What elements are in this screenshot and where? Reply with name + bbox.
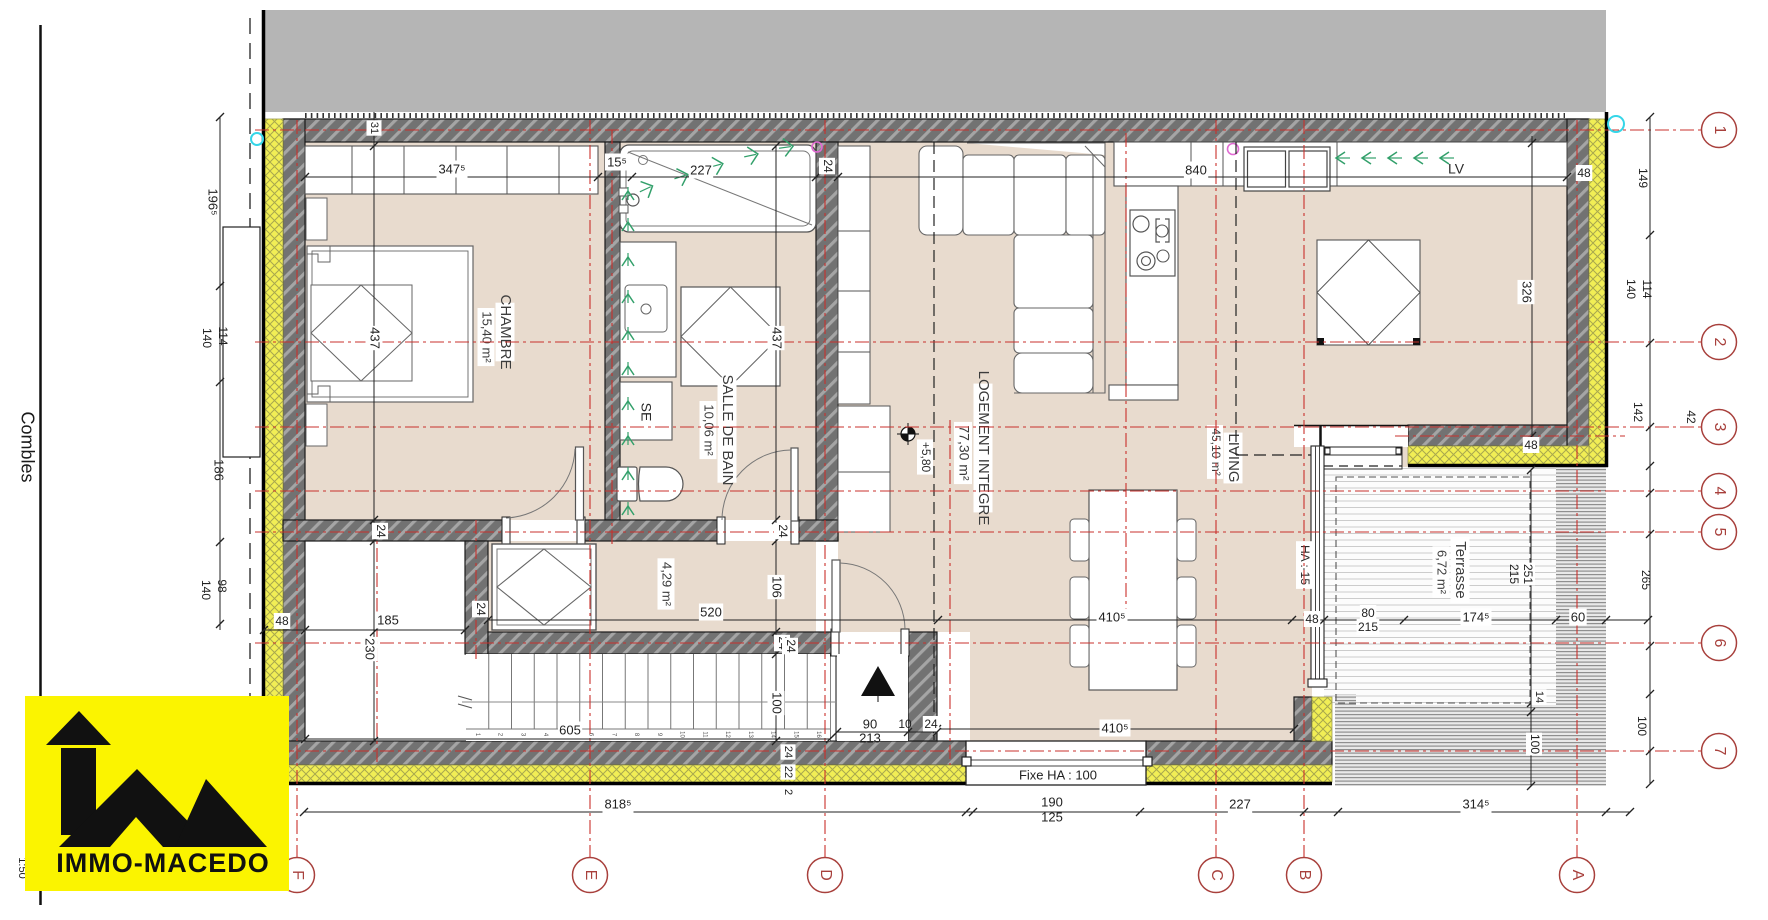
svg-text:2: 2: [782, 789, 794, 795]
svg-text:10: 10: [898, 717, 912, 731]
svg-text:410⁵: 410⁵: [1101, 720, 1128, 735]
svg-text:E: E: [582, 870, 599, 881]
svg-text:10: 10: [679, 731, 685, 738]
svg-text:186: 186: [212, 459, 227, 481]
svg-text:+5,80: +5,80: [919, 442, 933, 473]
svg-text:24: 24: [784, 639, 798, 653]
svg-text:106: 106: [770, 576, 785, 598]
svg-text:14: 14: [770, 731, 776, 738]
svg-text:24: 24: [821, 159, 835, 173]
svg-text:100: 100: [1635, 716, 1649, 736]
svg-text:410⁵: 410⁵: [1098, 609, 1125, 624]
svg-text:SALLE DE BAIN: SALLE DE BAIN: [719, 375, 736, 486]
svg-text:818⁵: 818⁵: [604, 796, 631, 811]
svg-text:230: 230: [363, 638, 378, 660]
svg-text:114: 114: [1640, 279, 1654, 298]
svg-text:A: A: [1569, 870, 1586, 881]
svg-text:605: 605: [559, 722, 581, 737]
svg-text:174⁵: 174⁵: [1462, 609, 1489, 624]
svg-text:IMMO-MACEDO: IMMO-MACEDO: [56, 848, 269, 878]
svg-text:SE: SE: [638, 403, 654, 422]
svg-text:185: 185: [377, 612, 399, 627]
svg-text:24: 24: [924, 717, 938, 731]
svg-text:24: 24: [776, 524, 790, 538]
svg-text:3: 3: [1711, 423, 1728, 432]
svg-text:LOGEMENT INTEGRE: LOGEMENT INTEGRE: [975, 371, 992, 526]
svg-text:15,40 m²: 15,40 m²: [480, 311, 495, 363]
svg-text:437: 437: [368, 327, 383, 349]
svg-text:80: 80: [1361, 606, 1375, 620]
svg-text:60: 60: [1571, 609, 1585, 624]
svg-text:15⁵: 15⁵: [607, 154, 627, 169]
svg-text:HA :-15: HA :-15: [1298, 545, 1312, 585]
svg-text:B: B: [1296, 870, 1313, 881]
svg-text:6,72 m²: 6,72 m²: [1435, 550, 1450, 595]
svg-text:520: 520: [700, 604, 722, 619]
svg-text:10,06 m²: 10,06 m²: [702, 404, 717, 456]
svg-text:15: 15: [792, 731, 798, 738]
svg-text:Fixe HA : 100: Fixe HA : 100: [1019, 767, 1097, 782]
svg-text:Terrasse: Terrasse: [1452, 541, 1469, 599]
svg-text:90: 90: [863, 716, 877, 731]
svg-text:140: 140: [199, 580, 213, 600]
svg-text:42: 42: [1684, 410, 1698, 424]
svg-text:48: 48: [275, 614, 289, 628]
svg-text:LV: LV: [1448, 161, 1465, 177]
svg-text:12: 12: [724, 731, 730, 738]
svg-text:24: 24: [474, 602, 488, 616]
svg-text:16: 16: [815, 731, 821, 738]
svg-text:4,29 m²: 4,29 m²: [660, 562, 675, 607]
svg-text:7: 7: [1711, 747, 1728, 756]
svg-text:314⁵: 314⁵: [1462, 796, 1489, 811]
svg-text:140: 140: [1624, 279, 1638, 299]
svg-text:77,30 m²: 77,30 m²: [956, 425, 972, 481]
svg-text:227: 227: [1229, 796, 1251, 811]
svg-text:196⁵: 196⁵: [206, 188, 221, 215]
svg-text:F: F: [289, 870, 306, 880]
svg-text:5: 5: [1711, 528, 1728, 537]
svg-text:22: 22: [782, 766, 794, 778]
svg-text:114: 114: [216, 326, 230, 345]
svg-text:1: 1: [1711, 126, 1728, 135]
svg-text:215: 215: [1358, 620, 1378, 634]
svg-text:48: 48: [1305, 612, 1319, 626]
svg-text:100: 100: [770, 692, 785, 714]
svg-text:48: 48: [1524, 438, 1538, 452]
svg-text:Combles: Combles: [17, 411, 37, 482]
svg-text:24: 24: [374, 524, 388, 538]
svg-text:6: 6: [1711, 639, 1728, 648]
svg-text:C: C: [1208, 869, 1225, 881]
svg-text:13: 13: [747, 731, 753, 738]
svg-text:98: 98: [215, 579, 229, 593]
svg-text:D: D: [817, 869, 834, 881]
svg-text:227: 227: [690, 162, 712, 177]
svg-text:215: 215: [1507, 564, 1521, 584]
svg-text:4: 4: [1711, 487, 1728, 496]
svg-text:2: 2: [1711, 338, 1728, 347]
svg-text:24: 24: [782, 746, 794, 758]
svg-text:213: 213: [859, 730, 881, 745]
svg-text:326: 326: [1520, 281, 1535, 303]
svg-text:251: 251: [1521, 564, 1535, 584]
svg-text:48: 48: [1577, 166, 1591, 180]
svg-text:LIVING: LIVING: [1225, 433, 1242, 482]
svg-text:437: 437: [770, 327, 785, 349]
svg-text:31: 31: [368, 122, 380, 134]
svg-text:11: 11: [701, 731, 707, 738]
svg-text:149: 149: [1636, 168, 1650, 188]
svg-text:14: 14: [1533, 691, 1545, 703]
svg-text:142: 142: [1631, 402, 1645, 422]
svg-text:840: 840: [1185, 162, 1207, 177]
svg-text:347⁵: 347⁵: [438, 161, 465, 176]
svg-text:265: 265: [1639, 570, 1653, 590]
svg-text:140: 140: [200, 328, 214, 348]
svg-text:100: 100: [1528, 734, 1542, 754]
svg-text:190: 190: [1041, 794, 1063, 809]
svg-text:CHAMBRE: CHAMBRE: [497, 294, 514, 369]
svg-text:125: 125: [1041, 809, 1063, 824]
